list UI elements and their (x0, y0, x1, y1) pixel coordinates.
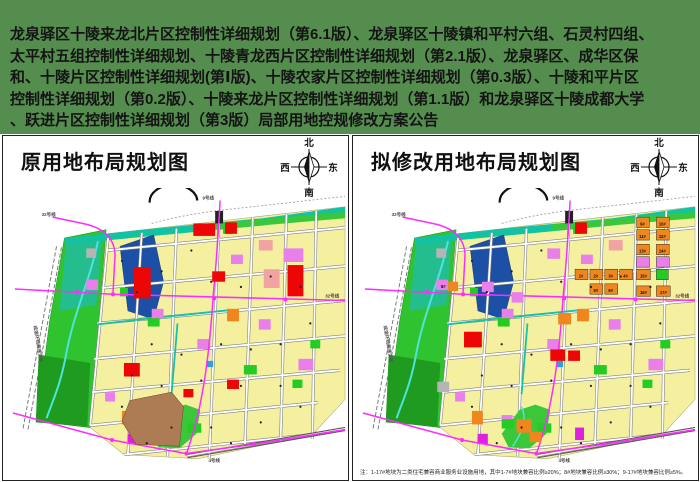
svg-text:2#: 2# (594, 273, 599, 278)
svg-text:5#: 5# (594, 288, 599, 293)
banner-line-5: 、跃进片区控制性详细规划（第3版）局部用地控规修改方案公告 (10, 110, 692, 132)
svg-text:成渝环线高速公路: 成渝环线高速公路 (32, 325, 45, 364)
announcement-banner: 龙泉驿区十陵来龙北片区控制性详细规划（第6.1版）、龙泉驿区十陵镇和平村六组、石… (0, 0, 700, 134)
banner-line-3: 和、十陵片区控制性详细规划(第Ⅰ版)、十陵农家片区控制性详细规划（第0.3版）、… (10, 67, 692, 89)
svg-text:9号线: 9号线 (203, 194, 215, 201)
svg-text:3#: 3# (608, 273, 613, 278)
banner-line-1: 龙泉驿区十陵来龙北片区控制性详细规划（第6.1版）、龙泉驿区十陵镇和平村六组、石… (10, 24, 692, 46)
original-plan-panel: 原用地布局规划图 北 南 西 东 32号线9号线32号线4号线成渝环线高速公路 (2, 135, 349, 481)
svg-text:14#: 14# (659, 248, 667, 253)
svg-text:9#: 9# (640, 221, 645, 226)
svg-text:32号线: 32号线 (42, 211, 56, 218)
svg-text:4#: 4# (623, 273, 628, 278)
svg-text:10#: 10# (659, 221, 667, 226)
svg-text:12#: 12# (659, 234, 667, 239)
original-landuse-map: 32号线9号线32号线4号线成渝环线高速公路 (3, 188, 348, 464)
svg-text:东: 东 (678, 162, 688, 174)
svg-text:东: 东 (328, 162, 338, 174)
svg-text:9号线: 9号线 (553, 194, 565, 201)
svg-text:西: 西 (630, 163, 640, 174)
svg-text:西: 西 (280, 163, 290, 174)
svg-text:16#: 16# (640, 290, 648, 295)
svg-text:4号线: 4号线 (558, 457, 570, 464)
planning-notice-page: { "banner": { "bg": "#548D4E", "lines": … (0, 0, 700, 482)
svg-text:17#: 17# (660, 290, 668, 295)
svg-text:11#: 11# (639, 234, 646, 239)
banner-line-2: 太平村五组控制性详细规划、十陵青龙西片区控制性详细规划（第2.1版）、龙泉驿区、… (10, 46, 692, 68)
proposed-plan-panel: 拟修改用地布局规划图 北 南 西 东 32号线9号线32号线4号线成渝环线高速公… (352, 135, 699, 481)
svg-text:32号线: 32号线 (325, 292, 339, 299)
svg-text:北: 北 (304, 137, 314, 149)
svg-text:1#: 1# (579, 273, 584, 278)
banner-line-4: 控制性详细规划（第0.2版）、十陵来龙片区控制性详细规划（第1.1版）和龙泉驿区… (10, 89, 692, 111)
svg-text:成渝环线高速公路: 成渝环线高速公路 (382, 325, 395, 364)
plan-note: 注：1-17#地块为二类住宅兼容商业服务业设施用地，其中1-7#地块兼容比例≥2… (360, 468, 695, 476)
svg-text:32号线: 32号线 (675, 292, 689, 299)
svg-text:8#: 8# (441, 284, 446, 289)
svg-text:6#: 6# (608, 288, 613, 293)
svg-text:13#: 13# (639, 248, 647, 253)
proposed-plan-title: 拟修改用地布局规划图 (371, 146, 581, 175)
svg-text:4号线: 4号线 (208, 457, 220, 464)
svg-text:15#: 15# (640, 273, 648, 278)
original-plan-title: 原用地布局规划图 (21, 146, 189, 175)
svg-text:北: 北 (654, 137, 664, 149)
svg-text:32号线: 32号线 (392, 211, 406, 218)
proposed-landuse-map: 32号线9号线32号线4号线成渝环线高速公路9#10#11#12#13#14#1… (353, 188, 698, 464)
